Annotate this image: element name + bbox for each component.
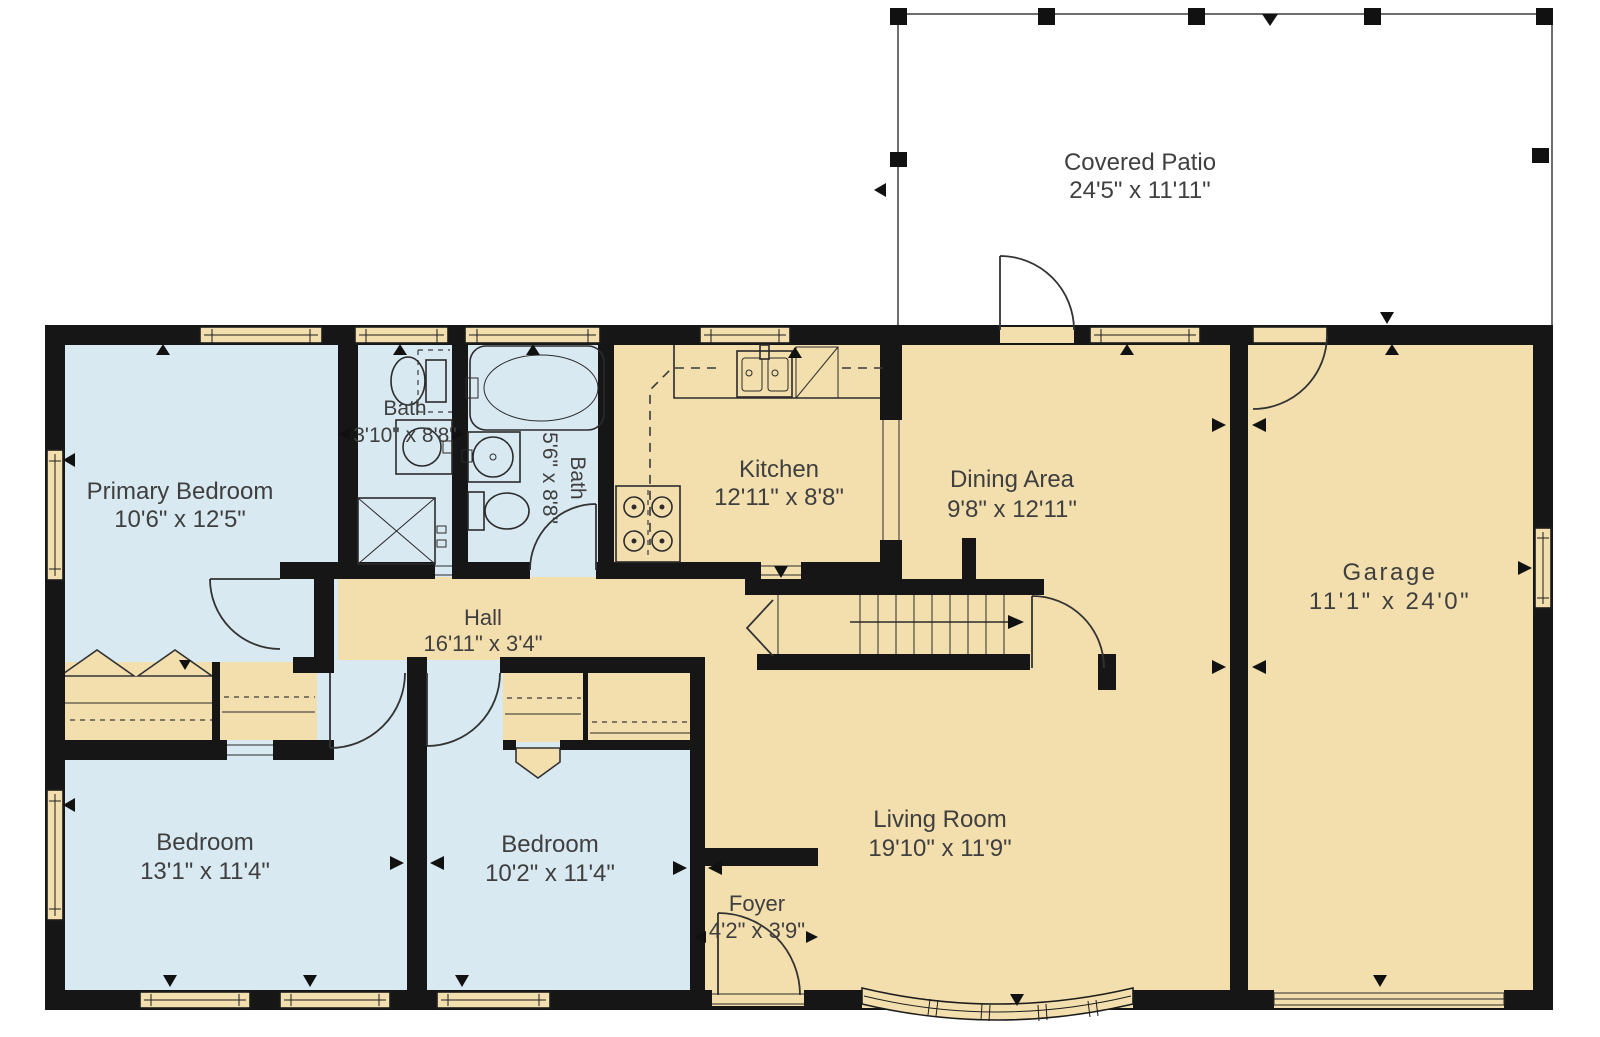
room-label-bath-hall: Bath — [566, 456, 589, 499]
room-dims-foyer: 4'2" x 3'9" — [709, 918, 805, 943]
floor-plan-canvas: Covered Patio 24'5" x 11'11" Primary Bed… — [0, 0, 1600, 1037]
room-label-living-room: Living Room — [873, 806, 1006, 833]
room-dims-covered-patio: 24'5" x 11'11" — [1069, 177, 1210, 204]
room-dims-bedroom-left: 13'1" x 11'4" — [140, 858, 270, 885]
room-label-bath-small: Bath — [383, 397, 426, 420]
window — [700, 327, 790, 343]
window — [465, 327, 600, 343]
patio-floor — [897, 12, 1553, 330]
window — [200, 327, 322, 343]
room-label-primary-bedroom: Primary Bedroom — [87, 478, 274, 505]
covered-patio-structure — [890, 8, 1553, 330]
room-label-garage: Garage — [1342, 559, 1437, 586]
room-label-kitchen: Kitchen — [739, 456, 819, 483]
room-label-foyer: Foyer — [729, 891, 785, 916]
room-dims-garage: 11'1" x 24'0" — [1309, 588, 1471, 615]
room-label-dining-area: Dining Area — [950, 466, 1075, 493]
room-dims-bath-hall: 5'6" x 8'8" — [538, 432, 561, 524]
garage-service-door — [1253, 327, 1327, 343]
bay-window — [862, 988, 1133, 1021]
room-label-bedroom-left: Bedroom — [156, 829, 253, 856]
patio-door-opening — [1000, 327, 1074, 343]
window — [355, 327, 448, 343]
room-label-bedroom-middle: Bedroom — [501, 831, 598, 858]
floor-plan-page: Covered Patio 24'5" x 11'11" Primary Bed… — [0, 0, 1600, 1037]
window — [140, 992, 250, 1008]
window — [1090, 327, 1200, 343]
garage-door — [1274, 990, 1504, 1008]
window — [437, 992, 550, 1008]
room-dims-hall: 16'11" x 3'4" — [423, 631, 542, 656]
room-dims-dining-area: 9'8" x 12'11" — [947, 496, 1077, 523]
bath-small-floor — [358, 345, 452, 577]
room-dims-kitchen: 12'11" x 8'8" — [714, 484, 844, 511]
room-dims-bedroom-middle: 10'2" x 11'4" — [485, 860, 615, 887]
window — [1535, 528, 1551, 608]
window — [47, 450, 63, 580]
window — [280, 992, 390, 1008]
room-dims-living-room: 19'10" x 11'9" — [868, 835, 1011, 862]
room-label-covered-patio: Covered Patio — [1064, 149, 1216, 176]
room-dims-bath-small: 3'10" x 8'8" — [353, 424, 457, 447]
room-label-hall: Hall — [464, 605, 502, 630]
window — [47, 790, 63, 920]
room-dims-primary-bedroom: 10'6" x 12'5" — [114, 506, 246, 533]
